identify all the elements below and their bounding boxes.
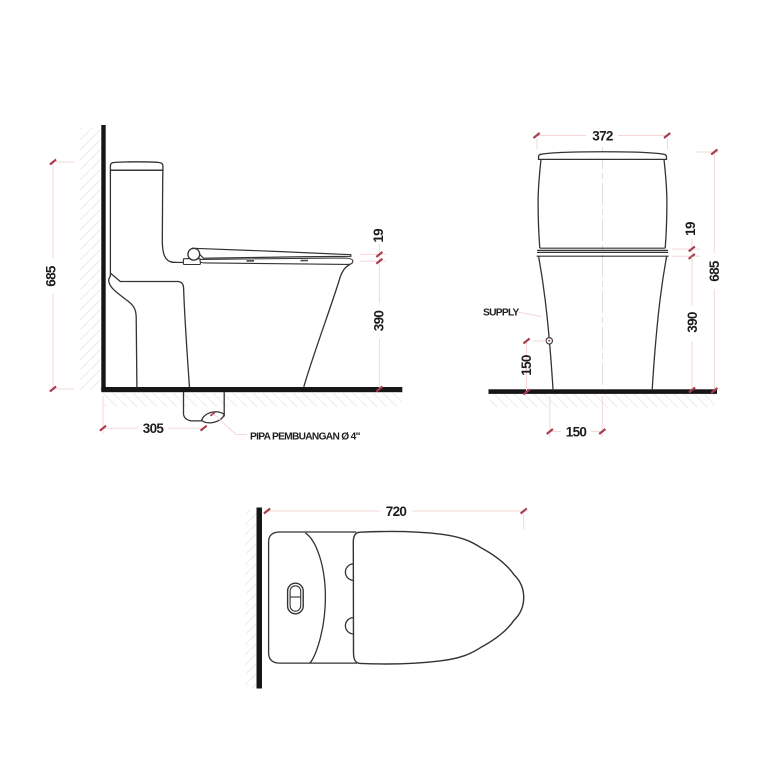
svg-text:PIPA PEMBUANGAN Ø 4": PIPA PEMBUANGAN Ø 4" (250, 432, 361, 443)
svg-text:685: 685 (44, 265, 59, 287)
svg-text:372: 372 (592, 129, 613, 144)
svg-text:19: 19 (683, 222, 698, 236)
svg-text:305: 305 (143, 421, 165, 436)
svg-text:19: 19 (371, 229, 386, 243)
svg-text:390: 390 (371, 311, 386, 332)
svg-text:720: 720 (386, 504, 407, 519)
svg-text:150: 150 (519, 355, 534, 376)
svg-text:SUPPLY: SUPPLY (483, 308, 520, 319)
svg-text:150: 150 (566, 425, 587, 440)
svg-text:390: 390 (685, 312, 700, 333)
svg-text:685: 685 (707, 260, 722, 282)
